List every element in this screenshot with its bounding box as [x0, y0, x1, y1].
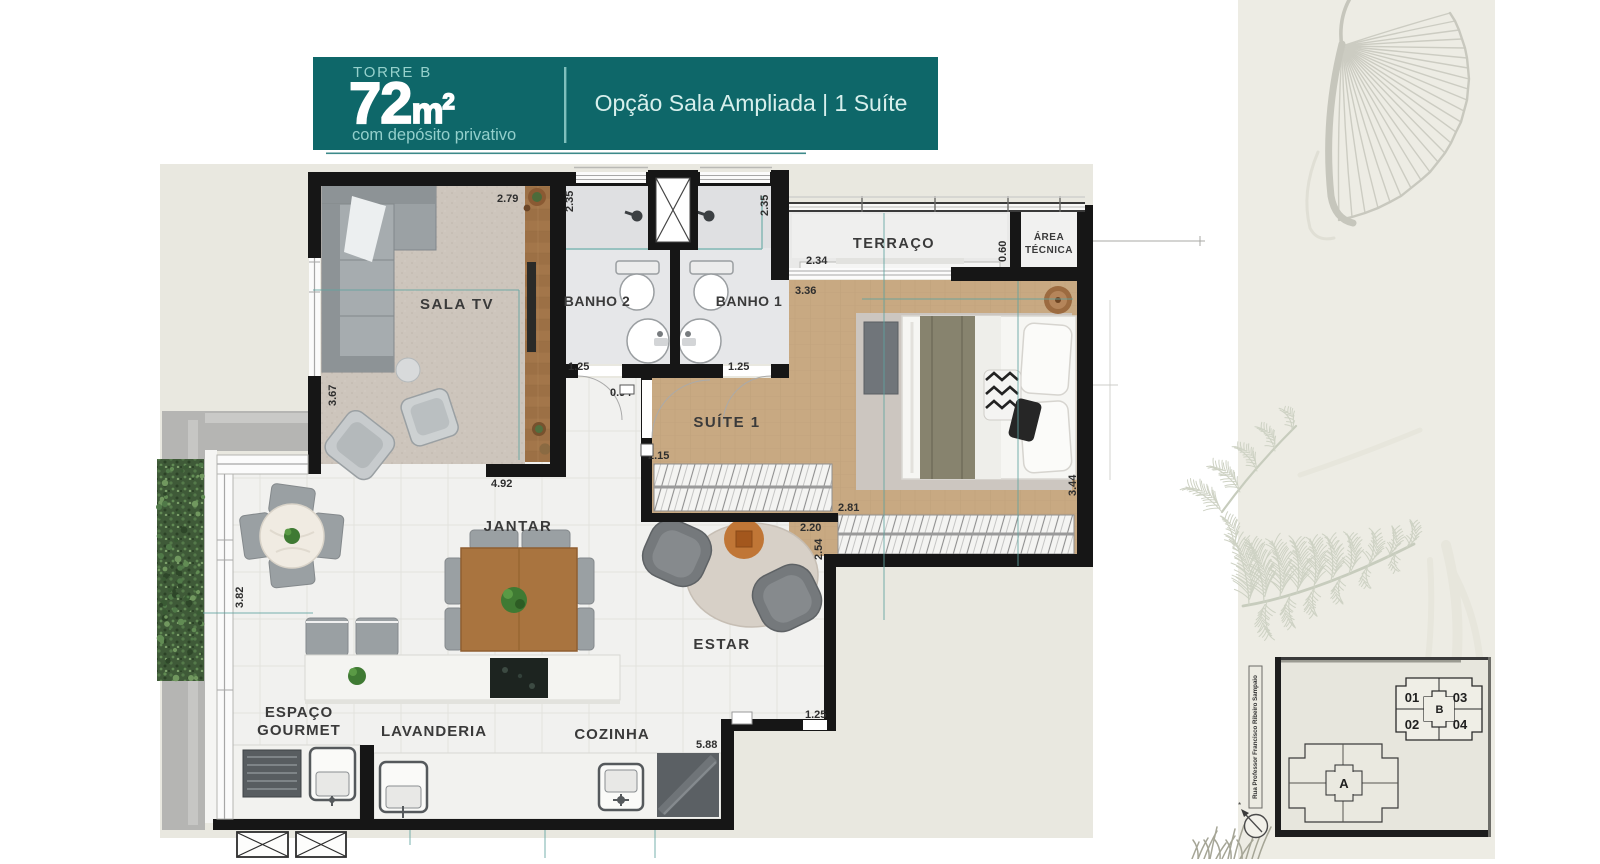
svg-text:5.88: 5.88 — [696, 739, 717, 751]
svg-text:1.25: 1.25 — [805, 709, 826, 721]
svg-text:LAVANDERIA: LAVANDERIA — [381, 723, 487, 740]
svg-text:COZINHA: COZINHA — [574, 726, 649, 743]
svg-text:TERRAÇO: TERRAÇO — [853, 236, 935, 252]
svg-text:2.54: 2.54 — [813, 538, 825, 560]
svg-text:ESPAÇO: ESPAÇO — [265, 704, 333, 721]
svg-text:4.92: 4.92 — [491, 478, 512, 490]
svg-text:ÁREA: ÁREA — [1034, 230, 1064, 243]
svg-text:01: 01 — [1405, 690, 1419, 705]
svg-text:GOURMET: GOURMET — [257, 722, 341, 739]
svg-text:03: 03 — [1453, 690, 1467, 705]
svg-text:3.36: 3.36 — [795, 285, 816, 297]
svg-text:*: * — [1238, 801, 1241, 810]
svg-text:JANTAR: JANTAR — [484, 518, 553, 535]
svg-text:2.34: 2.34 — [806, 255, 828, 267]
svg-text:3.67: 3.67 — [327, 385, 339, 406]
svg-text:3.44: 3.44 — [1067, 474, 1079, 496]
svg-text:2.20: 2.20 — [800, 522, 821, 534]
svg-text:SALA TV: SALA TV — [420, 296, 494, 313]
svg-text:02: 02 — [1405, 717, 1419, 732]
svg-text:BANHO 2: BANHO 2 — [564, 293, 631, 309]
svg-text:com depósito privativo: com depósito privativo — [352, 126, 516, 144]
svg-text:2.35: 2.35 — [564, 191, 576, 212]
svg-text:BANHO 1: BANHO 1 — [716, 293, 783, 309]
svg-text:1.25: 1.25 — [568, 361, 589, 373]
svg-text:B: B — [1436, 704, 1444, 716]
svg-text:2.81: 2.81 — [838, 502, 859, 514]
svg-text:TÉCNICA: TÉCNICA — [1025, 243, 1073, 256]
svg-text:ESTAR: ESTAR — [693, 636, 750, 653]
svg-text:A: A — [1339, 776, 1349, 791]
svg-text:Rua Professor Francisco Ribeir: Rua Professor Francisco Ribeiro Sampaio — [1252, 675, 1259, 799]
svg-text:2.79: 2.79 — [497, 193, 518, 205]
svg-text:04: 04 — [1453, 717, 1468, 732]
svg-text:3.82: 3.82 — [234, 587, 246, 608]
svg-text:2.35: 2.35 — [759, 195, 771, 216]
svg-text:1.25: 1.25 — [728, 361, 749, 373]
svg-text:0.60: 0.60 — [997, 241, 1009, 262]
svg-text:Opção Sala Ampliada | 1 Suíte: Opção Sala Ampliada | 1 Suíte — [595, 90, 908, 116]
svg-text:SUÍTE 1: SUÍTE 1 — [693, 414, 760, 431]
